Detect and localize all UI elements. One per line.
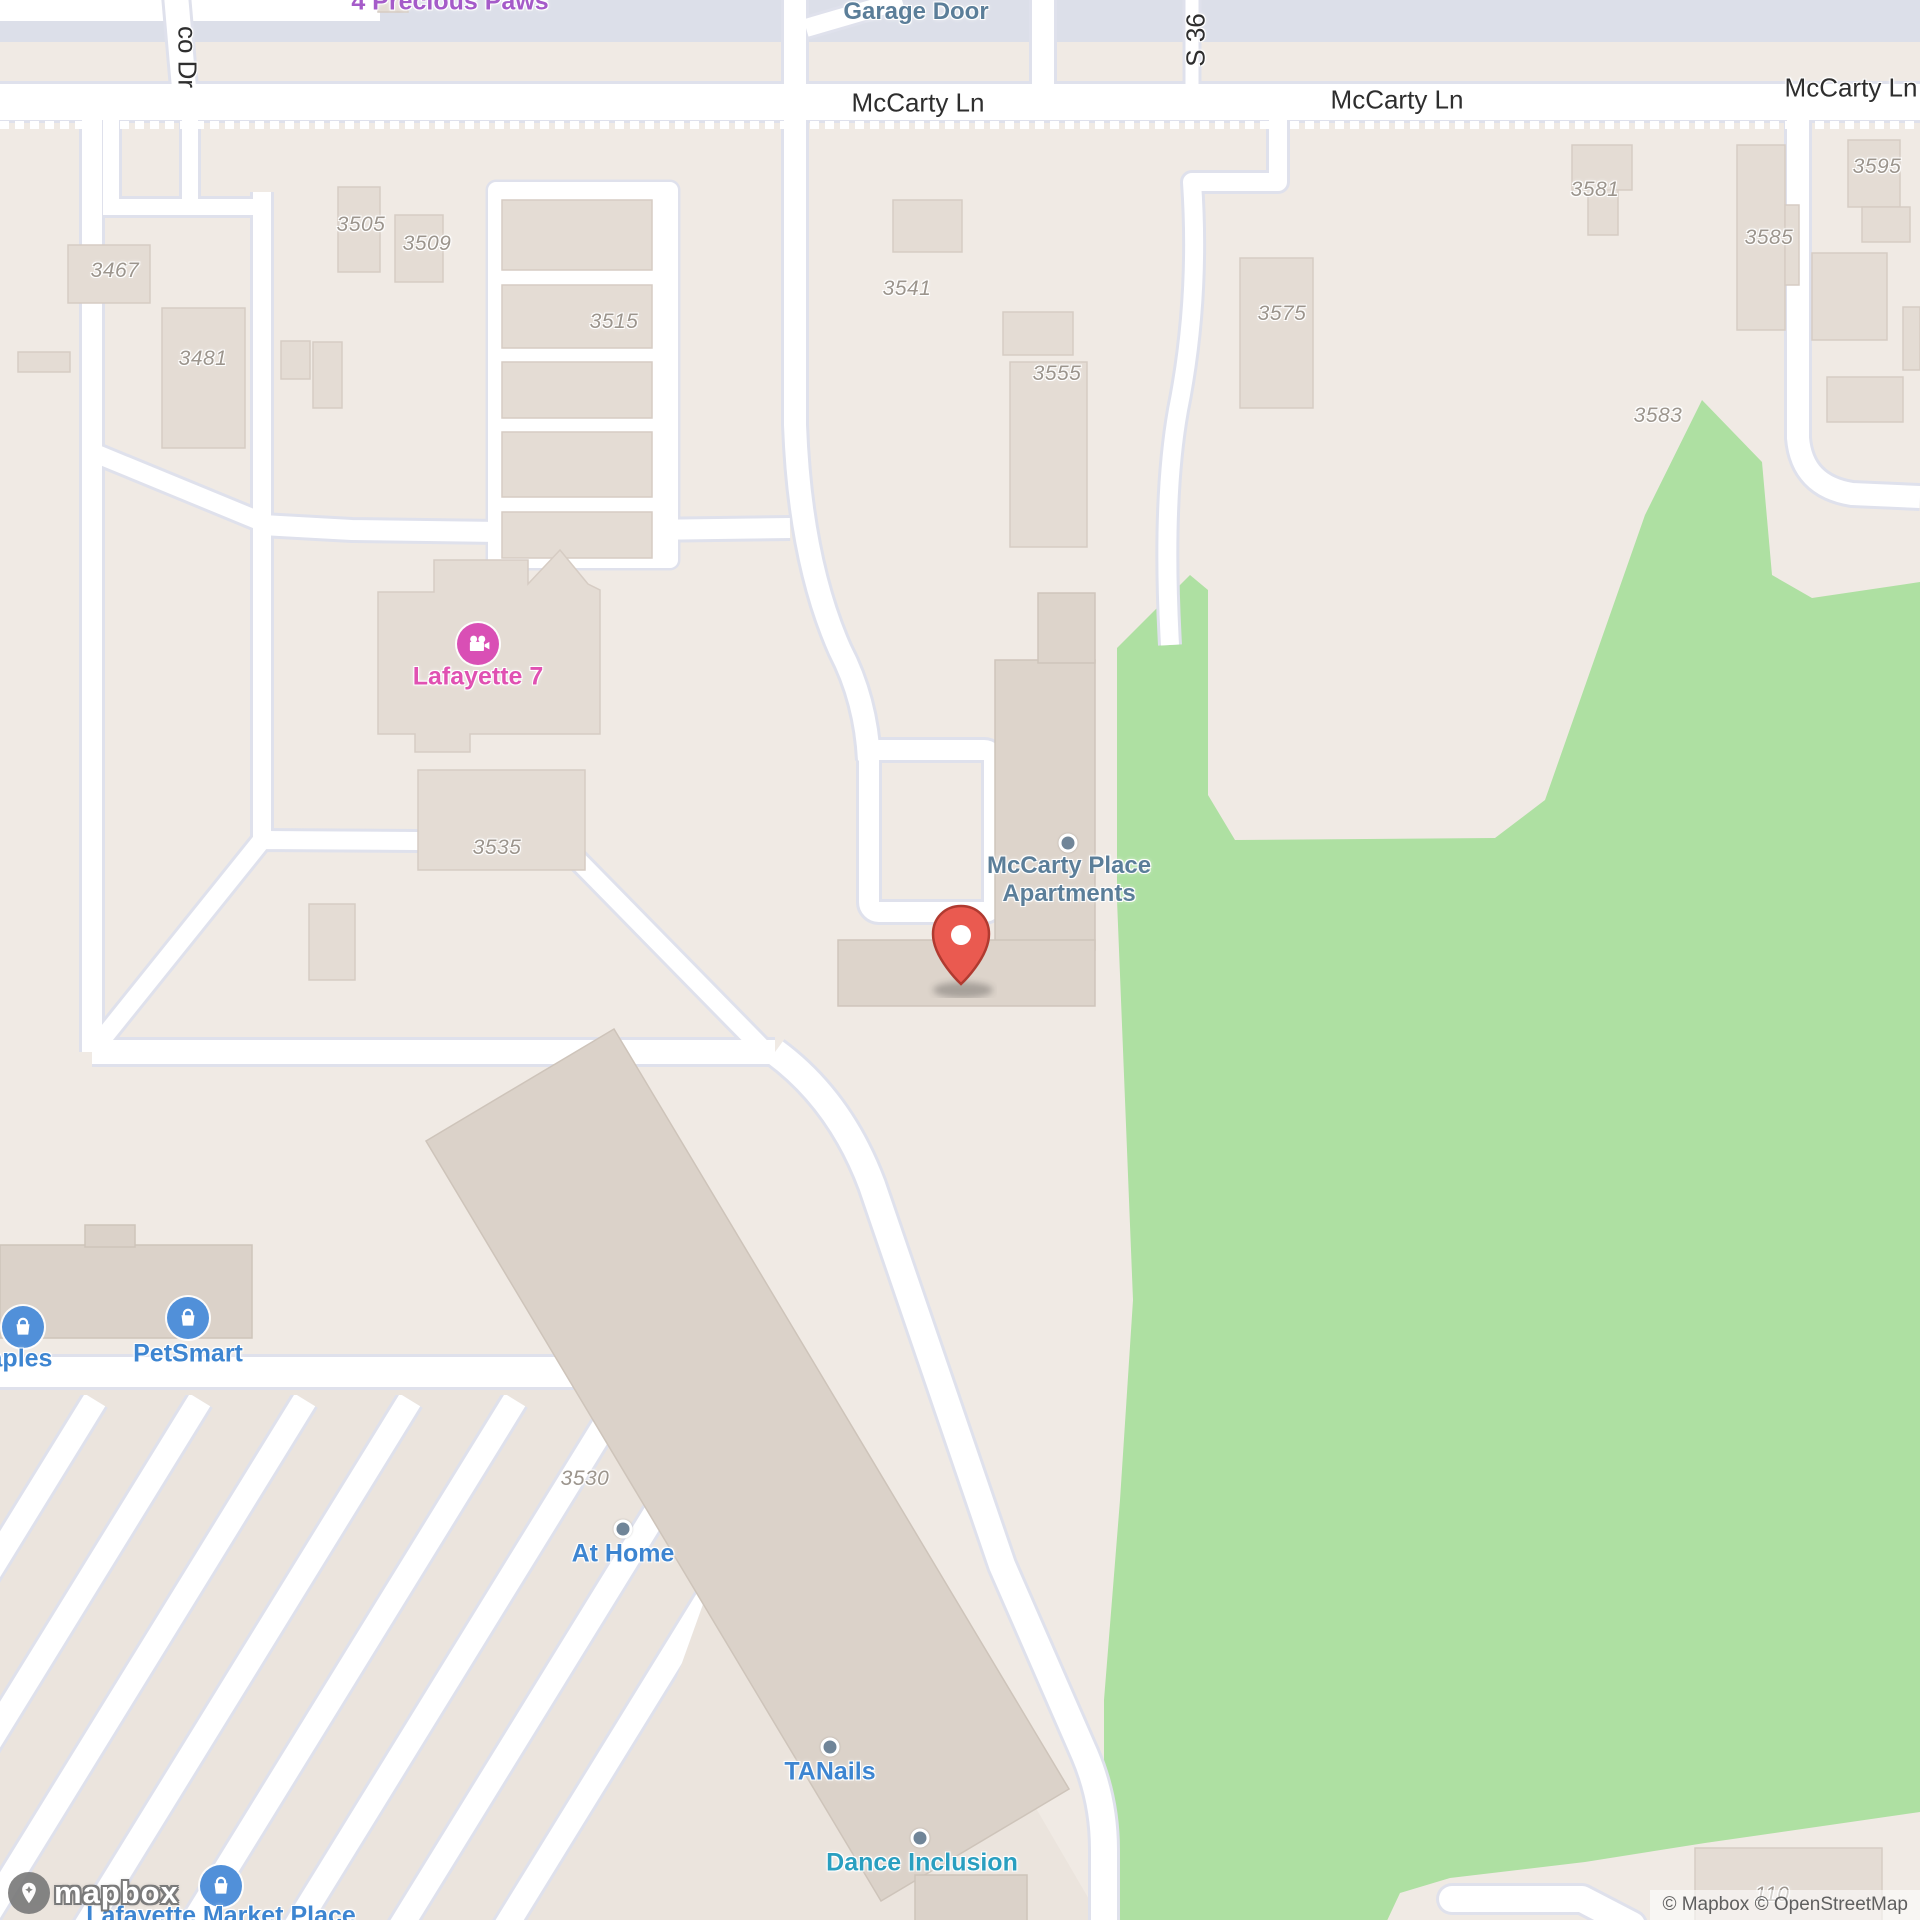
poi-dot bbox=[614, 1520, 633, 1539]
location-pin bbox=[925, 898, 997, 998]
address-label: 3535 bbox=[473, 836, 522, 860]
poi-dot bbox=[1059, 834, 1078, 853]
map-attribution[interactable]: © Mapbox © OpenStreetMap bbox=[1650, 1890, 1920, 1920]
poi-label-apartments: Apartments bbox=[1002, 880, 1135, 908]
road-label-co-dr: co Dr bbox=[172, 26, 203, 88]
cinema-icon bbox=[457, 623, 499, 665]
poi-label-4-precious-paws: 4 Precious Paws bbox=[351, 0, 548, 17]
poi-label-garage-door: Garage Door bbox=[843, 0, 988, 26]
poi-dot bbox=[911, 1829, 930, 1848]
poi-label-tanails: TANails bbox=[784, 1758, 875, 1787]
shopping-icon bbox=[167, 1297, 209, 1339]
poi-label-lafayette-7: Lafayette 7 bbox=[413, 663, 544, 692]
address-label: 3581 bbox=[1571, 178, 1620, 202]
address-label: 3505 bbox=[337, 213, 386, 237]
road-label-mccarty-ln-2: McCarty Ln bbox=[1331, 85, 1464, 116]
road-label-mccarty-ln-1: McCarty Ln bbox=[852, 88, 985, 119]
address-label: 3555 bbox=[1033, 362, 1082, 386]
address-label: 3575 bbox=[1258, 302, 1307, 326]
road-label-s-36: S 36 bbox=[1181, 13, 1212, 67]
address-label: 3585 bbox=[1745, 226, 1794, 250]
poi-label-dance-inclusion: Dance Inclusion bbox=[826, 1849, 1018, 1878]
poi-dot bbox=[821, 1738, 840, 1757]
poi-label-petsmart: PetSmart bbox=[133, 1340, 243, 1369]
poi-label-mccarty-place: McCarty Place bbox=[987, 852, 1151, 880]
mapbox-wordmark: mapbox bbox=[54, 1875, 179, 1911]
address-label: 3509 bbox=[403, 232, 452, 256]
address-label: 3481 bbox=[179, 347, 228, 371]
address-label: 3583 bbox=[1634, 404, 1683, 428]
shopping-icon bbox=[2, 1306, 44, 1348]
address-label: 3595 bbox=[1853, 155, 1902, 179]
mapbox-logo[interactable]: mapbox bbox=[8, 1872, 179, 1914]
address-label: 3530 bbox=[561, 1467, 610, 1491]
map-canvas[interactable]: McCarty Ln McCarty Ln McCarty Ln co Dr S… bbox=[0, 0, 1920, 1920]
address-label: 3515 bbox=[590, 310, 639, 334]
address-label: 3541 bbox=[883, 277, 932, 301]
poi-label-staples: Staples bbox=[0, 1345, 52, 1374]
mapbox-pin-icon bbox=[8, 1872, 50, 1914]
road-label-mccarty-ln-3: McCarty Ln bbox=[1785, 73, 1918, 104]
address-label: 3467 bbox=[91, 259, 140, 283]
poi-label-at-home: At Home bbox=[572, 1540, 675, 1569]
